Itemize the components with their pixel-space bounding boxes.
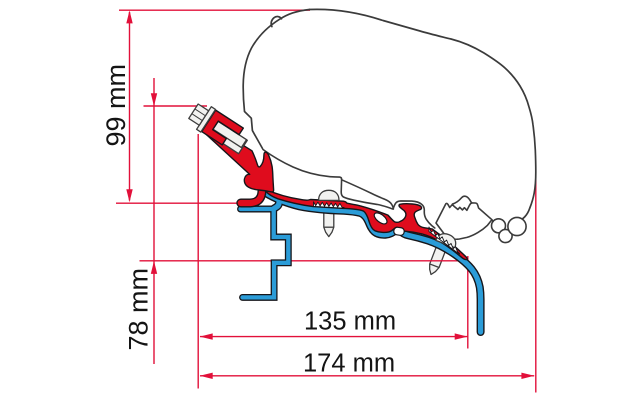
svg-text:78 mm: 78 mm [124,268,154,351]
svg-text:174 mm: 174 mm [303,350,395,378]
svg-text:135 mm: 135 mm [304,308,396,336]
svg-text:99 mm: 99 mm [101,64,131,147]
